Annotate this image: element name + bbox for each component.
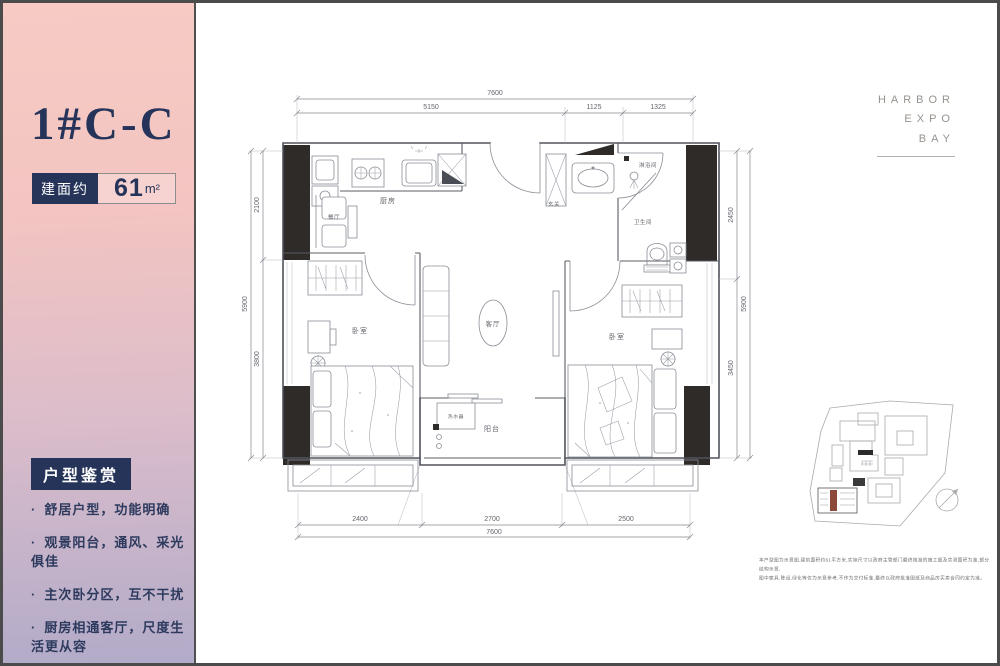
feature-item: 观景阳台，通风、采光俱佳 [31, 532, 194, 570]
dimension-bottom: 2400 2700 2500 7600 [295, 493, 693, 540]
disclaimer-line: 本户型图为示意图,建筑面积约61平方米,实际尺寸以政府主管部门最终核准的施工图及… [759, 557, 993, 575]
dim-left-seg: 3800 [254, 351, 261, 367]
room-label-dining: 餐厅 [328, 213, 340, 221]
room-label-living: 客厅 [486, 319, 501, 328]
dim-left-total: 5900 [242, 296, 249, 312]
area-value: 61 m² [98, 173, 176, 204]
feature-list: 舒居户型，功能明确 观景阳台，通风、采光俱佳 主次卧分区，互不干扰 厨房相通客厅… [31, 499, 194, 666]
balcony-furniture [433, 403, 475, 449]
room-label-balcony: 阳台 [484, 424, 500, 433]
disclaimer-line: 图中家具,陈设,绿化等仅为示意参考,不作为交付标准,最终以政府批准图纸及商品房买… [759, 575, 993, 584]
dim-top-seg: 5150 [423, 104, 439, 111]
dim-top-total: 7600 [487, 90, 503, 97]
dim-top-seg: 1125 [586, 104, 601, 111]
room-label-kitchen: 厨房 [380, 196, 396, 205]
unit-title: 1#C-C [31, 97, 177, 151]
disclaimer: 本户型图为示意图,建筑面积约61平方米,实际尺寸以政府主管部门最终核准的施工图及… [759, 557, 993, 584]
room-label-bedroom-left: 卧室 [352, 326, 368, 335]
area-unit: m² [145, 181, 160, 196]
area-label: 建面约 [32, 173, 98, 204]
room-label-entry: 玄关 [548, 200, 560, 208]
kitchen-furniture [312, 143, 466, 248]
living-furniture [423, 266, 559, 366]
bathroom-furniture [572, 144, 686, 273]
compass-icon [936, 489, 958, 511]
dim-bottom-seg: 2700 [484, 516, 500, 523]
dimension-right: 2450 3450 5900 [719, 148, 753, 461]
dimension-left: 2100 3800 5900 [242, 148, 283, 461]
feature-item: 厨房相通客厅，尺度生活更从容 [31, 617, 194, 655]
room-label-bedroom-right: 卧室 [609, 332, 625, 341]
dim-top-seg: 1325 [650, 104, 666, 111]
bedroom-right-furniture [568, 285, 682, 457]
room-label-shower: 淋浴间 [639, 161, 657, 169]
room-label-bathroom: 卫生间 [634, 218, 652, 226]
dim-bottom-seg: 2500 [618, 516, 634, 523]
dim-bottom-total: 7600 [486, 529, 502, 536]
feature-item: 主次卧分区，互不干扰 [31, 584, 194, 603]
dim-right-total: 5900 [741, 296, 748, 312]
area-number: 61 [114, 174, 144, 203]
section-title-badge: 户型鉴赏 [31, 458, 131, 490]
bedroom-left-furniture [308, 261, 413, 456]
dim-bottom-seg: 2400 [352, 516, 368, 523]
sitemap [810, 401, 958, 526]
area-badge: 建面约 61 m² [32, 173, 176, 204]
dim-left-seg: 2100 [254, 197, 261, 213]
dimension-top: 7600 5150 1125 1325 [294, 90, 696, 143]
floorplan-page: 1#C-C 建面约 61 m² 户型鉴赏 舒居户型，功能明确 观景阳台，通风、采… [0, 0, 1000, 666]
feature-item: 舒居户型，功能明确 [31, 499, 194, 518]
dim-right-seg: 2450 [728, 207, 735, 223]
room-label-water-heater: 热水器 [448, 413, 464, 420]
dim-right-seg: 3450 [728, 360, 735, 376]
entry-furniture [546, 154, 566, 206]
sidebar: 1#C-C 建面约 61 m² 户型鉴赏 舒居户型，功能明确 观景阳台，通风、采… [3, 3, 196, 663]
